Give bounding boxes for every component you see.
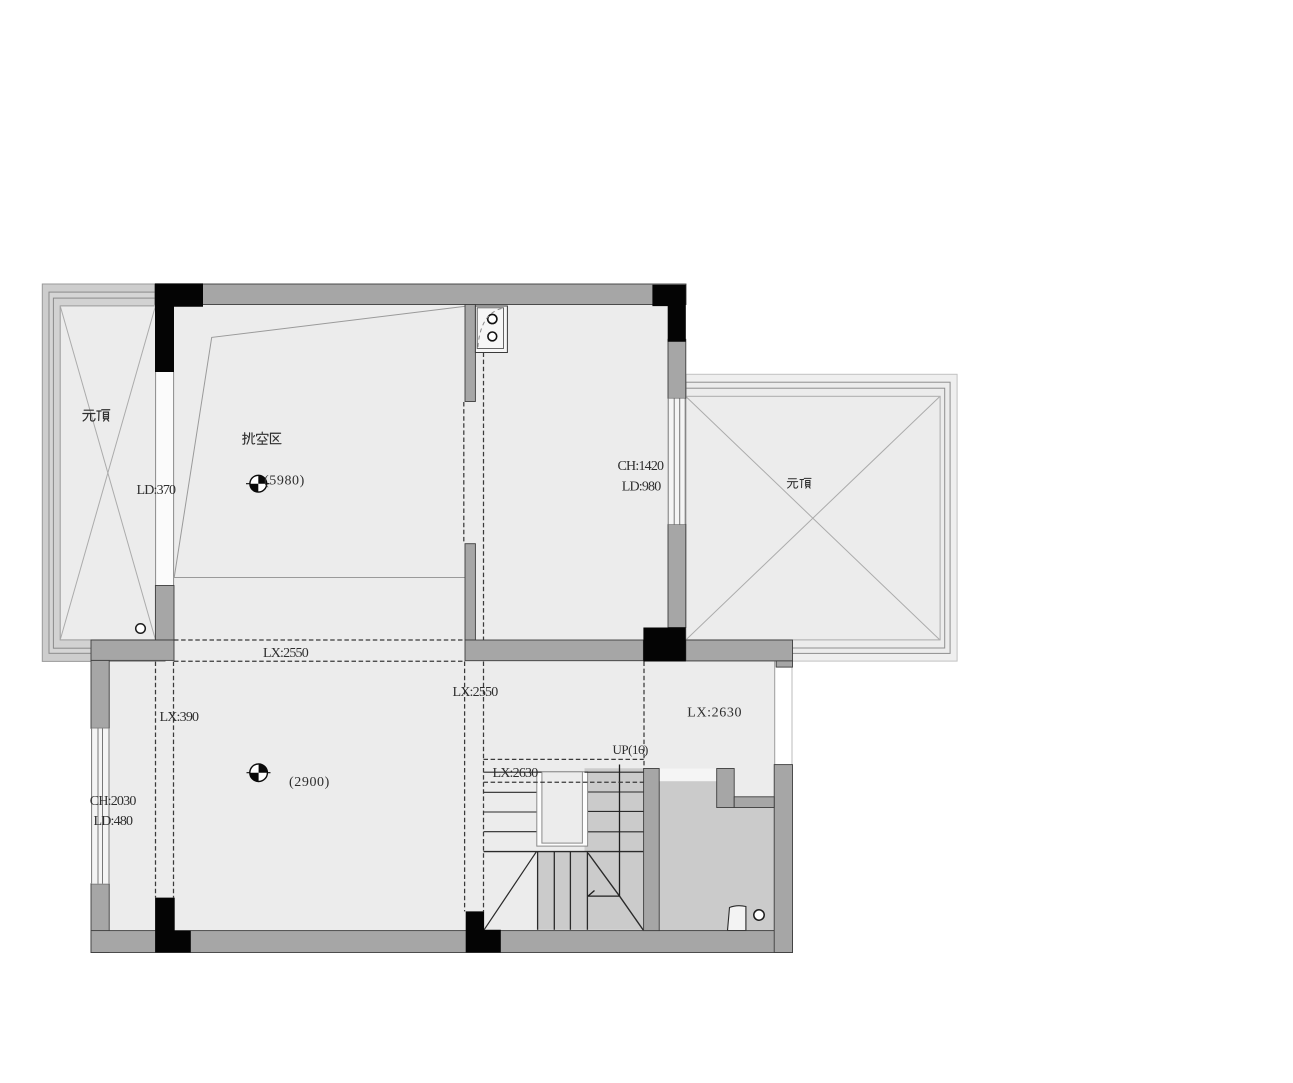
svg-text:LX:2550: LX:2550 [263,646,309,661]
svg-text:(5980): (5980) [264,474,305,489]
svg-text:LX:390: LX:390 [160,710,200,725]
svg-text:CH:1420: CH:1420 [618,459,665,474]
svg-text:LX:2550: LX:2550 [453,685,499,700]
svg-text:LX:2630: LX:2630 [493,766,539,781]
svg-text:(2900): (2900) [289,775,330,790]
svg-text:LX:2630: LX:2630 [687,706,742,721]
svg-text:CH:2030: CH:2030 [90,794,137,809]
svg-text:LD:370: LD:370 [137,483,177,498]
svg-text:UP(16): UP(16) [613,742,648,757]
svg-text:LD:980: LD:980 [622,480,662,495]
svg-text:LD:480: LD:480 [94,814,134,829]
